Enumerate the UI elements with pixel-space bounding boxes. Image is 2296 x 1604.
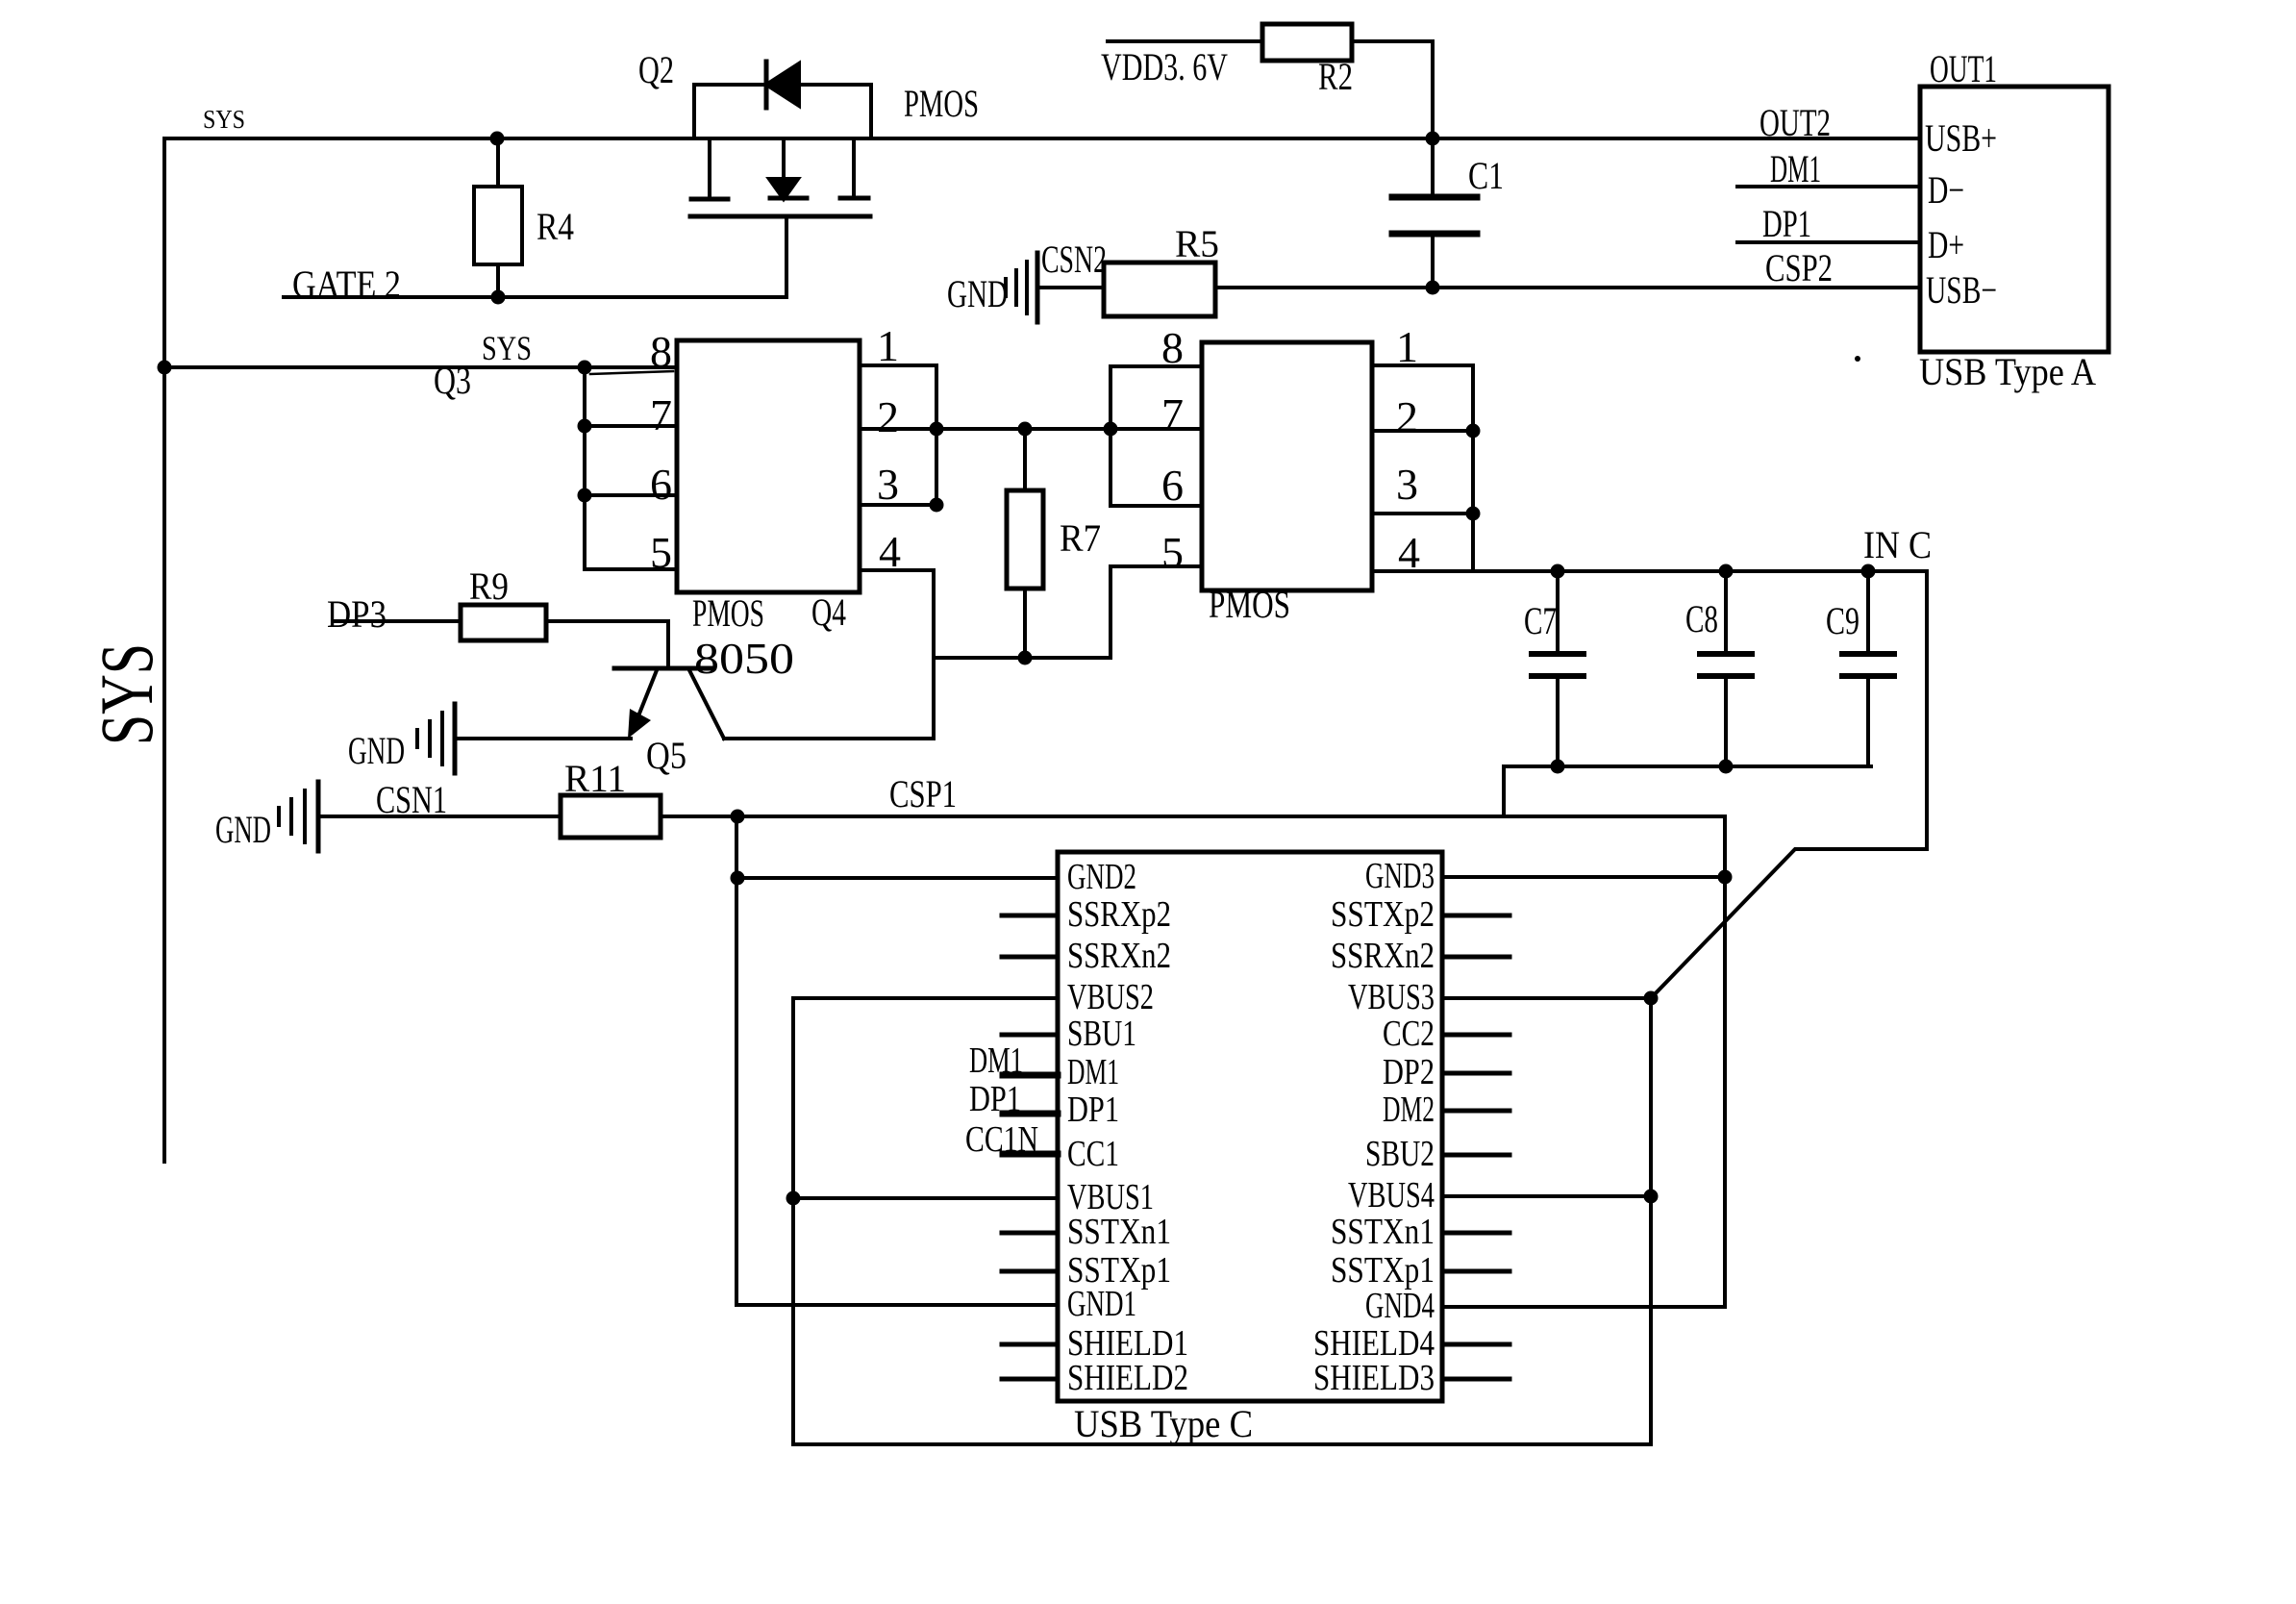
svg-text:VDD3. 6V: VDD3. 6V xyxy=(1101,45,1228,88)
svg-text:GND4: GND4 xyxy=(1365,1286,1435,1326)
svg-text:GND2: GND2 xyxy=(1067,857,1136,897)
svg-text:Q5: Q5 xyxy=(646,734,686,777)
svg-text:8: 8 xyxy=(1161,323,1184,372)
svg-text:6: 6 xyxy=(1161,461,1184,510)
svg-text:GND3: GND3 xyxy=(1365,856,1435,896)
svg-text:5: 5 xyxy=(650,528,672,577)
svg-text:1: 1 xyxy=(1396,322,1418,371)
svg-text:PMOS: PMOS xyxy=(904,82,979,125)
svg-text:R4: R4 xyxy=(537,205,574,248)
svg-text:GND: GND xyxy=(348,729,405,772)
svg-text:DP2: DP2 xyxy=(1383,1052,1435,1092)
svg-text:GATE 2: GATE 2 xyxy=(292,263,401,306)
svg-text:GND: GND xyxy=(947,272,1008,315)
svg-text:SSRXn2: SSRXn2 xyxy=(1331,936,1435,976)
svg-text:SYS: SYS xyxy=(203,105,245,134)
svg-text:DP1: DP1 xyxy=(1762,202,1811,245)
svg-text:D−: D− xyxy=(1928,168,1964,212)
svg-text:VBUS4: VBUS4 xyxy=(1348,1175,1435,1216)
svg-text:SSRXp2: SSRXp2 xyxy=(1067,894,1171,935)
svg-text:Q4: Q4 xyxy=(811,590,846,634)
svg-text:SBU1: SBU1 xyxy=(1067,1014,1136,1054)
svg-text:5: 5 xyxy=(1161,528,1184,577)
svg-text:C9: C9 xyxy=(1826,599,1859,642)
svg-text:CC1N: CC1N xyxy=(965,1119,1038,1160)
svg-text:7: 7 xyxy=(1161,389,1184,439)
svg-text:DM1: DM1 xyxy=(1067,1052,1119,1092)
svg-text:3: 3 xyxy=(877,460,899,509)
svg-text:6: 6 xyxy=(650,460,672,509)
svg-text:R11: R11 xyxy=(564,757,626,800)
svg-text:SHIELD2: SHIELD2 xyxy=(1067,1358,1188,1398)
svg-text:D+: D+ xyxy=(1928,223,1964,266)
svg-text:CSP1: CSP1 xyxy=(889,772,957,815)
svg-text:R9: R9 xyxy=(469,564,509,608)
svg-text:IN C: IN C xyxy=(1863,523,1932,566)
svg-text:CC1: CC1 xyxy=(1067,1134,1119,1174)
svg-text:3: 3 xyxy=(1396,460,1418,509)
svg-text:SSTXp1: SSTXp1 xyxy=(1331,1250,1435,1291)
svg-text:R5: R5 xyxy=(1175,222,1219,265)
svg-text:DP3: DP3 xyxy=(327,592,387,636)
svg-text:4: 4 xyxy=(1398,528,1420,577)
svg-text:SSRXn2: SSRXn2 xyxy=(1067,936,1171,976)
svg-text:VBUS2: VBUS2 xyxy=(1067,977,1154,1017)
svg-text:DP1: DP1 xyxy=(1067,1090,1119,1130)
svg-text:DM1: DM1 xyxy=(1770,147,1821,190)
svg-text:SBU2: SBU2 xyxy=(1365,1134,1435,1174)
svg-text:SSTXn1: SSTXn1 xyxy=(1331,1212,1435,1252)
svg-text:2: 2 xyxy=(877,392,899,441)
svg-text:2: 2 xyxy=(1396,392,1418,441)
svg-text:CSN2: CSN2 xyxy=(1041,238,1107,281)
svg-text:R7: R7 xyxy=(1060,516,1101,560)
svg-text:USB Type C: USB Type C xyxy=(1074,1402,1253,1445)
svg-text:8050: 8050 xyxy=(694,634,794,683)
svg-text:SYS: SYS xyxy=(85,643,168,745)
svg-text:USB−: USB− xyxy=(1926,268,1997,312)
svg-text:C8: C8 xyxy=(1685,597,1718,640)
svg-text:PMOS: PMOS xyxy=(692,591,764,635)
svg-text:Q2: Q2 xyxy=(638,48,674,91)
svg-text:CC2: CC2 xyxy=(1383,1014,1435,1054)
svg-text:GND: GND xyxy=(215,808,271,851)
svg-text:SSTXn1: SSTXn1 xyxy=(1067,1212,1171,1252)
svg-text:SHIELD3: SHIELD3 xyxy=(1313,1358,1435,1398)
svg-text:CSP2: CSP2 xyxy=(1765,246,1833,289)
svg-text:DM2: DM2 xyxy=(1383,1090,1435,1130)
svg-text:4: 4 xyxy=(879,527,901,576)
svg-text:OUT1: OUT1 xyxy=(1930,47,1997,90)
svg-text:PMOS: PMOS xyxy=(1209,583,1290,626)
svg-text:SYS: SYS xyxy=(482,329,532,367)
svg-text:CSN1: CSN1 xyxy=(376,778,447,821)
svg-text:DP1: DP1 xyxy=(969,1079,1021,1119)
svg-text:R2: R2 xyxy=(1318,55,1353,98)
svg-text:VBUS3: VBUS3 xyxy=(1348,977,1435,1017)
svg-text:8: 8 xyxy=(650,327,672,376)
svg-text:1: 1 xyxy=(877,321,899,370)
svg-text:OUT2: OUT2 xyxy=(1759,101,1831,144)
svg-text:Q3: Q3 xyxy=(434,359,471,402)
svg-text:7: 7 xyxy=(650,390,672,439)
svg-text:USB Type A: USB Type A xyxy=(1919,350,2096,393)
svg-text:C1: C1 xyxy=(1468,154,1504,197)
svg-text:GND1: GND1 xyxy=(1067,1284,1136,1324)
svg-text:SSTXp2: SSTXp2 xyxy=(1331,894,1435,935)
svg-text:C7: C7 xyxy=(1524,599,1557,642)
svg-text:USB+: USB+ xyxy=(1925,116,1997,160)
svg-text:DM1: DM1 xyxy=(969,1040,1023,1081)
